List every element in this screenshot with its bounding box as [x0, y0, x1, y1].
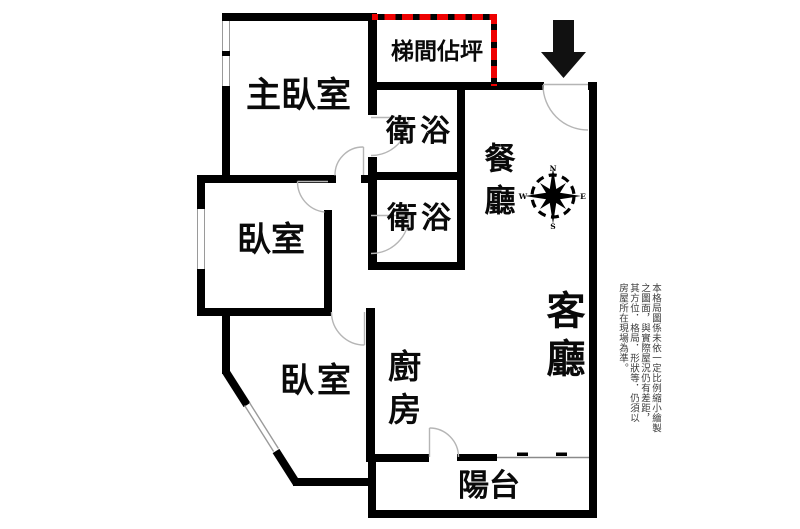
disclaimer-line: 其方位．格局．形狀等．仍須以 — [628, 283, 639, 453]
room-label-bathroom-2: 衛浴 — [387, 203, 455, 235]
wall — [368, 82, 544, 90]
room-label-kitchen: 廚房 — [384, 349, 419, 435]
wall — [368, 262, 465, 270]
floor-plan: N S W E 主臥室 梯間佔坪 衛浴 衛浴 餐廳 臥室 臥室 廚房 客廳 陽台… — [0, 0, 800, 529]
wall — [457, 454, 497, 461]
door-bedroom-2 — [332, 312, 365, 345]
sliding-door — [497, 453, 589, 458]
disclaimer-text: 本格局圖係未依一定比例縮小繪製 之圖面，與實際屋況仍有差距， 其方位．格局．形狀… — [617, 283, 661, 453]
window — [222, 21, 230, 51]
wall — [197, 308, 331, 316]
room-label-stairwell: 梯間佔坪 — [391, 40, 483, 64]
door-kitchen-balcony — [430, 428, 459, 457]
room-label-bedroom-2: 臥室 — [280, 364, 354, 400]
room-label-living: 客廳 — [542, 290, 583, 386]
wall — [368, 454, 376, 518]
wall — [324, 210, 332, 316]
room-label-balcony: 陽台 — [458, 470, 520, 503]
room-label-bathroom-1: 衛浴 — [386, 116, 454, 148]
compass-east-label: E — [580, 192, 586, 201]
window — [197, 209, 205, 269]
compass-south-label: S — [550, 222, 555, 231]
disclaimer-line: 之圖面，與實際屋況仍有差距， — [639, 283, 650, 453]
wall — [368, 157, 377, 270]
wall — [222, 308, 230, 374]
wall — [457, 88, 465, 270]
wall — [366, 308, 375, 462]
door-bedroom-1 — [297, 182, 328, 213]
compass-icon: N S W E — [518, 164, 586, 231]
door-master-bedroom — [335, 147, 364, 176]
wall — [222, 13, 377, 21]
room-label-bedroom-1: 臥室 — [237, 223, 305, 259]
wall — [197, 175, 336, 183]
compass-west-label: W — [518, 192, 528, 201]
wall — [368, 510, 597, 518]
entrance-arrow-icon — [541, 20, 586, 78]
wall — [368, 13, 377, 115]
disclaimer-line: 本格局圖係未依一定比例縮小繪製 — [650, 283, 661, 453]
window — [222, 56, 230, 86]
room-label-master-bedroom: 主臥室 — [246, 78, 351, 115]
room-label-dining: 餐廳 — [480, 142, 513, 226]
wall — [197, 175, 205, 210]
wall — [293, 478, 373, 486]
wall — [589, 82, 597, 518]
wall — [368, 172, 465, 180]
wall — [222, 85, 230, 183]
compass-north-label: N — [550, 164, 557, 173]
chamfer-window — [245, 406, 274, 452]
wall — [197, 268, 205, 316]
door-entrance — [543, 85, 588, 131]
disclaimer-line: 房屋所在現場為準。 — [617, 283, 628, 453]
